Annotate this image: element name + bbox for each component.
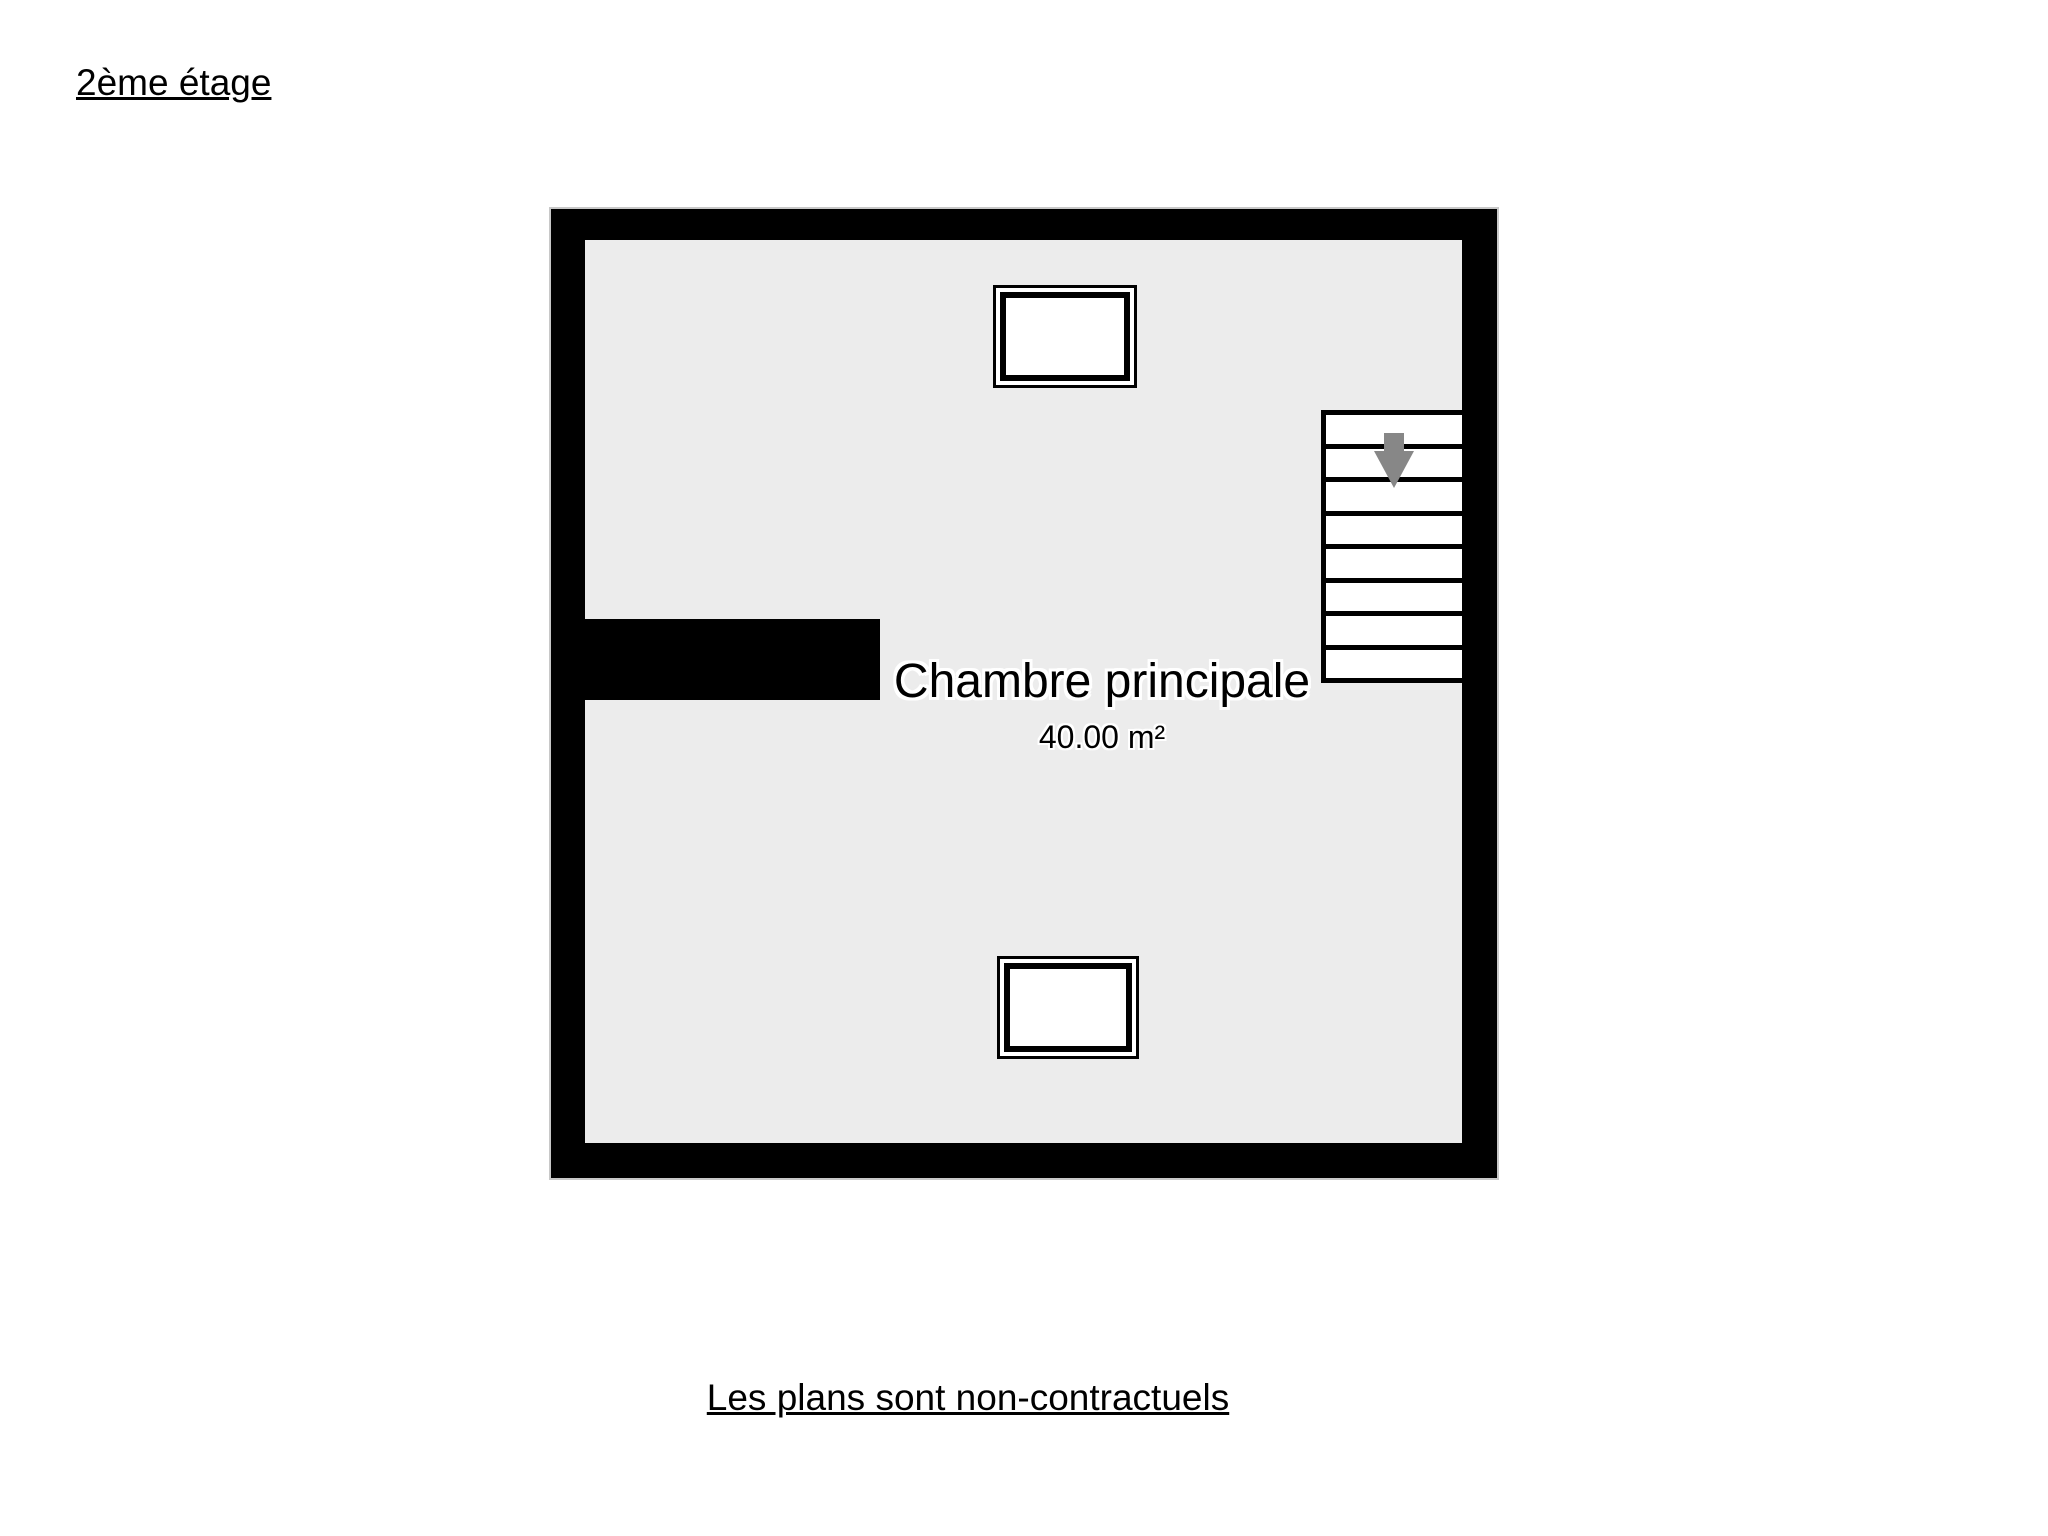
floorplan-page: 2ème étage Chambre principale 40.00 m² [0,0,2048,1536]
floorplan: Chambre principale 40.00 m² [551,209,1497,1178]
window-glass [1000,292,1130,381]
stair-tread [1326,549,1462,583]
stair-tread [1326,650,1462,679]
interior-wall-segment [585,619,880,700]
window-top [993,285,1137,388]
room-chambre-principale: Chambre principale 40.00 m² [585,240,1462,1143]
window-glass [1004,963,1132,1052]
stair-tread [1326,516,1462,550]
room-label: Chambre principale 40.00 m² [894,654,1310,756]
stair-tread [1326,616,1462,650]
page-title: 2ème étage [76,62,271,104]
staircase [1321,410,1462,683]
stairs-down-arrow-icon [1374,433,1414,488]
stair-tread [1326,583,1462,617]
disclaimer-text: Les plans sont non-contractuels [707,1377,1229,1419]
arrow-shaft [1384,433,1404,451]
room-name: Chambre principale [894,654,1310,709]
room-area: 40.00 m² [894,719,1310,756]
window-bottom [997,956,1139,1059]
arrow-head [1374,451,1414,488]
